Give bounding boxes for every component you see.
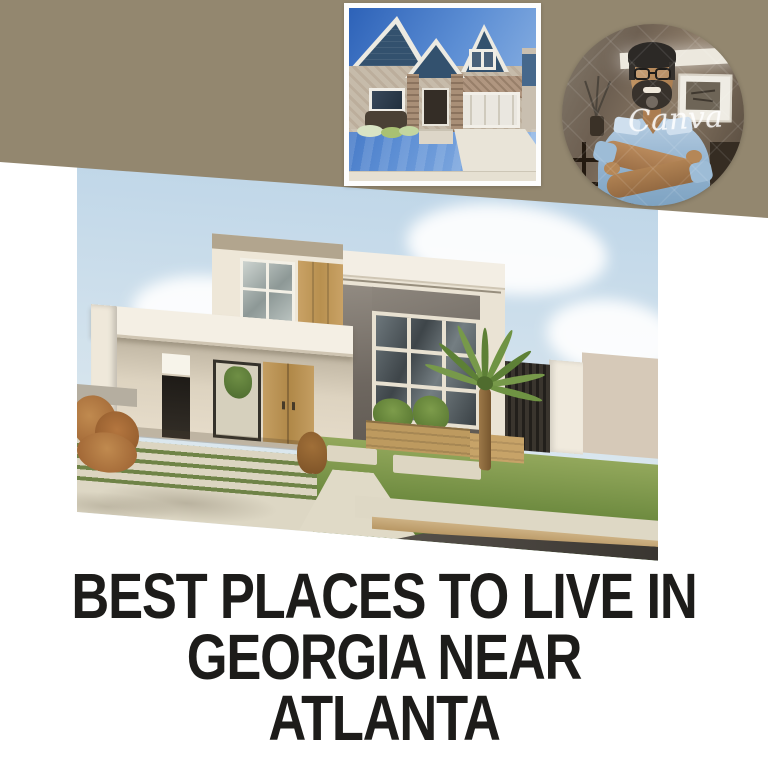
sidewalk-strip [349,171,536,181]
palm-trunk [479,388,491,471]
flower-shrub [357,125,383,137]
wood-panel [298,261,343,329]
top-house-photo [349,8,536,181]
upper-left-volume [212,233,343,328]
front-steps [419,129,453,144]
social-graphic-canvas: { "page": { "background": "#ffffff", "wi… [0,0,768,768]
canva-watermark: Canva [627,100,724,140]
headline-line-1: BEST PLACES TO LIVE IN [69,566,699,627]
palm-tree [419,327,549,478]
wood-seam [312,262,314,326]
garage-door [455,92,520,128]
upper-window [240,258,295,325]
neighbor-wall [582,352,658,458]
mullion [481,52,484,67]
palm-frond [484,382,542,404]
side-wall [549,360,583,455]
wood-seam [327,263,329,327]
headline-line-2: GEORGIA NEAR ATLANTA [69,627,699,749]
top-house-photo-frame [344,3,541,186]
door-handle [282,401,285,409]
hanging-plant [224,365,252,399]
neighbor-siding [522,54,536,86]
realtor-avatar: Canva [562,24,744,206]
stone-column [451,74,463,132]
clerestory-window [162,353,190,375]
stone-column [407,74,419,132]
main-house-photo [77,150,658,561]
tall-window [213,359,261,441]
flower-shrub [399,126,419,136]
headline: BEST PLACES TO LIVE IN GEORGIA NEAR ATLA… [69,566,699,749]
door-seam [287,364,289,444]
front-window [369,88,405,112]
door-handle [292,402,295,410]
dormer-window [469,49,496,70]
parapet-strip [212,233,343,259]
front-door [422,88,449,126]
